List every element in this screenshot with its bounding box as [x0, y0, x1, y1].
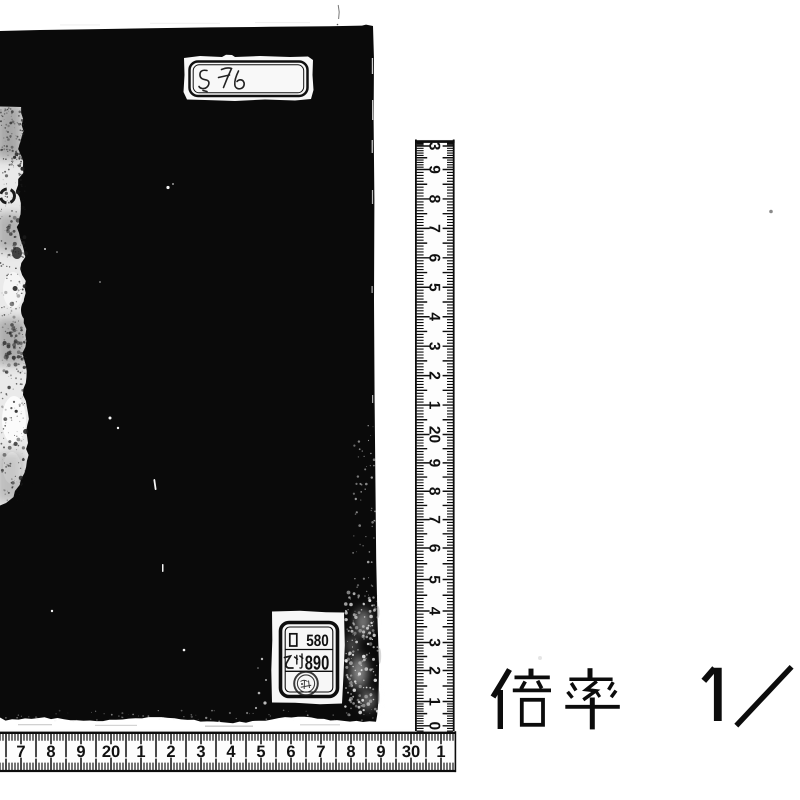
- svg-text:8: 8: [426, 487, 443, 496]
- svg-text:9: 9: [426, 459, 443, 468]
- svg-text:20: 20: [102, 743, 120, 761]
- svg-text:8: 8: [46, 743, 55, 761]
- svg-text:7: 7: [16, 743, 25, 761]
- svg-text:4: 4: [226, 743, 236, 761]
- svg-text:5: 5: [426, 575, 443, 584]
- svg-text:8: 8: [426, 195, 443, 204]
- svg-text:1: 1: [426, 697, 443, 706]
- svg-text:6: 6: [286, 743, 295, 761]
- svg-text:20: 20: [426, 426, 443, 443]
- svg-text:1: 1: [436, 743, 445, 761]
- svg-text:1: 1: [426, 401, 443, 410]
- svg-text:8: 8: [346, 743, 355, 761]
- svg-text:9: 9: [426, 165, 443, 174]
- svg-text:1: 1: [136, 743, 145, 761]
- svg-text:6: 6: [426, 253, 443, 262]
- svg-text:3: 3: [426, 638, 443, 647]
- svg-text:30: 30: [402, 743, 420, 761]
- svg-text:9: 9: [76, 743, 85, 761]
- svg-text:9: 9: [376, 743, 385, 761]
- svg-text:2: 2: [426, 666, 443, 675]
- svg-text:5: 5: [426, 283, 443, 292]
- svg-text:3: 3: [426, 142, 443, 151]
- svg-text:3: 3: [196, 743, 205, 761]
- svg-text:6: 6: [426, 544, 443, 553]
- svg-text:7: 7: [426, 515, 443, 524]
- svg-text:2: 2: [426, 371, 443, 380]
- svg-text:7: 7: [426, 224, 443, 233]
- svg-text:2: 2: [166, 743, 175, 761]
- svg-text:0: 0: [426, 721, 443, 730]
- svg-text:7: 7: [316, 743, 325, 761]
- svg-text:5: 5: [256, 743, 265, 761]
- svg-text:4: 4: [426, 607, 443, 616]
- svg-text:3: 3: [426, 342, 443, 351]
- svg-text:4: 4: [426, 312, 443, 321]
- svg-text:580: 580: [306, 632, 329, 650]
